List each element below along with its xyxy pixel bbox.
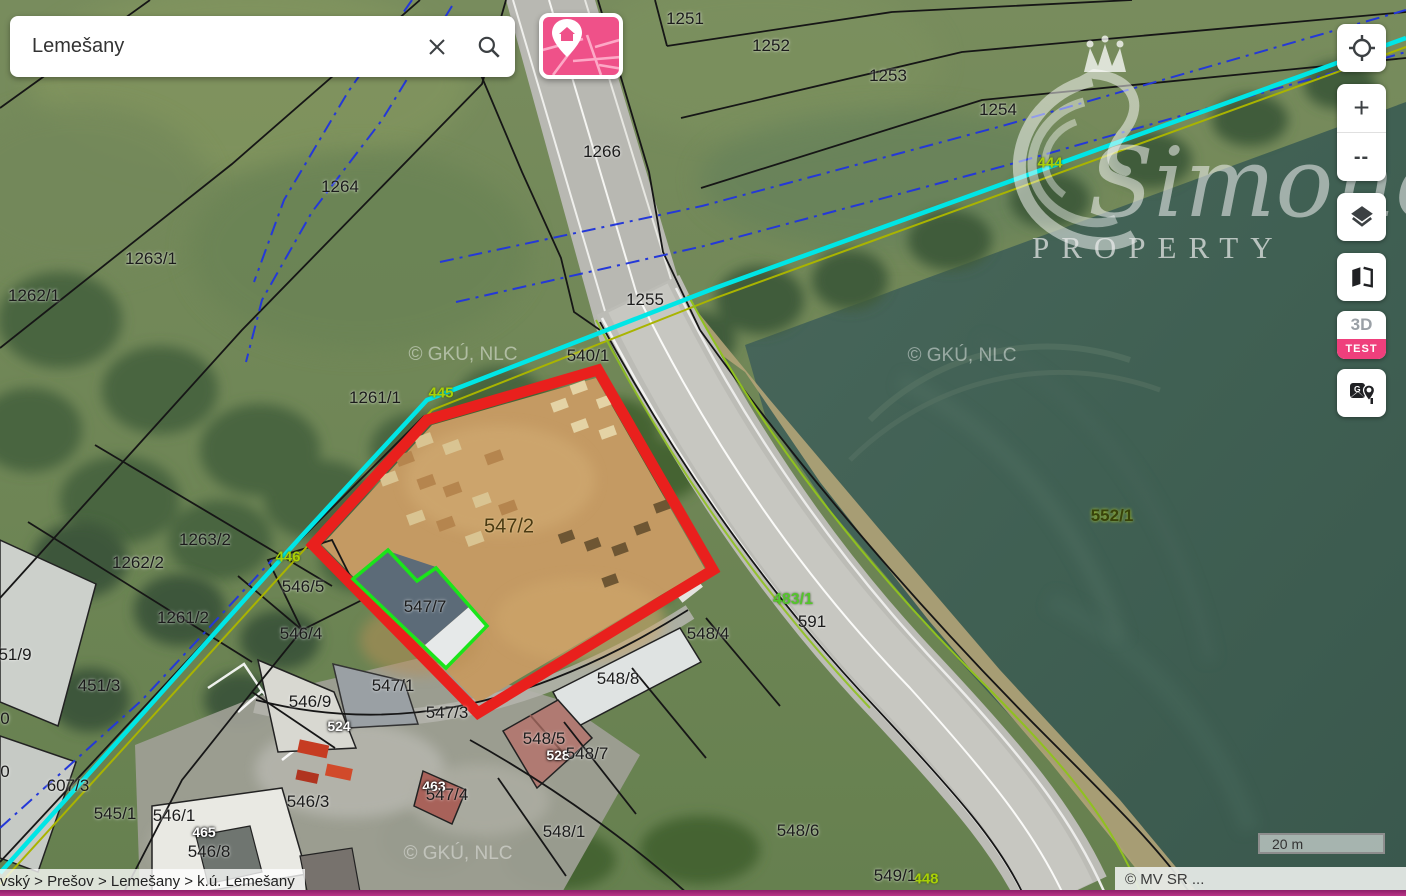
zoom-out-button[interactable]: -- [1337,133,1386,181]
basemap-switch-button[interactable] [539,13,623,79]
zoom-in-button[interactable]: + [1337,84,1386,132]
view-3d-button[interactable]: 3D TEST [1337,311,1386,359]
compare-maps-icon [1349,264,1375,290]
tile-watermark: © GKÚ, NLC [403,842,512,864]
layers-icon [1349,204,1375,230]
scale-bar: 20 m [1258,833,1385,854]
aerial-imagery: © GKÚ, NLC © GKÚ, NLC © GKÚ, NLC Simone … [0,0,1406,896]
search-icon [476,34,502,60]
search-bar [10,16,515,77]
tile-watermark: © GKÚ, NLC [907,344,1016,366]
brand-sub-watermark: PROPERTY [1032,230,1285,265]
test-badge: TEST [1337,339,1386,359]
zoom-control: + -- [1337,84,1386,181]
search-button[interactable] [463,21,515,73]
clear-search-button[interactable] [411,21,463,73]
layers-button[interactable] [1337,193,1386,241]
minus-icon: -- [1354,146,1369,169]
three-d-label: 3D [1351,311,1373,339]
tile-watermark: © GKÚ, NLC [408,343,517,365]
locate-me-button[interactable] [1337,24,1386,72]
close-icon [425,35,449,59]
attribution: © MV SR ... [1115,867,1406,892]
compare-maps-button[interactable] [1337,253,1386,301]
bottom-accent-bar [0,890,1406,896]
locate-icon [1349,35,1375,61]
map-canvas[interactable]: © GKÚ, NLC © GKÚ, NLC © GKÚ, NLC Simone … [0,0,1406,896]
scale-bar-label: 20 m [1272,836,1303,852]
google-maps-pin-icon: G [1348,379,1376,407]
google-maps-button[interactable]: G [1337,369,1386,417]
map-with-pin-icon [543,17,619,75]
search-input[interactable] [10,35,411,58]
